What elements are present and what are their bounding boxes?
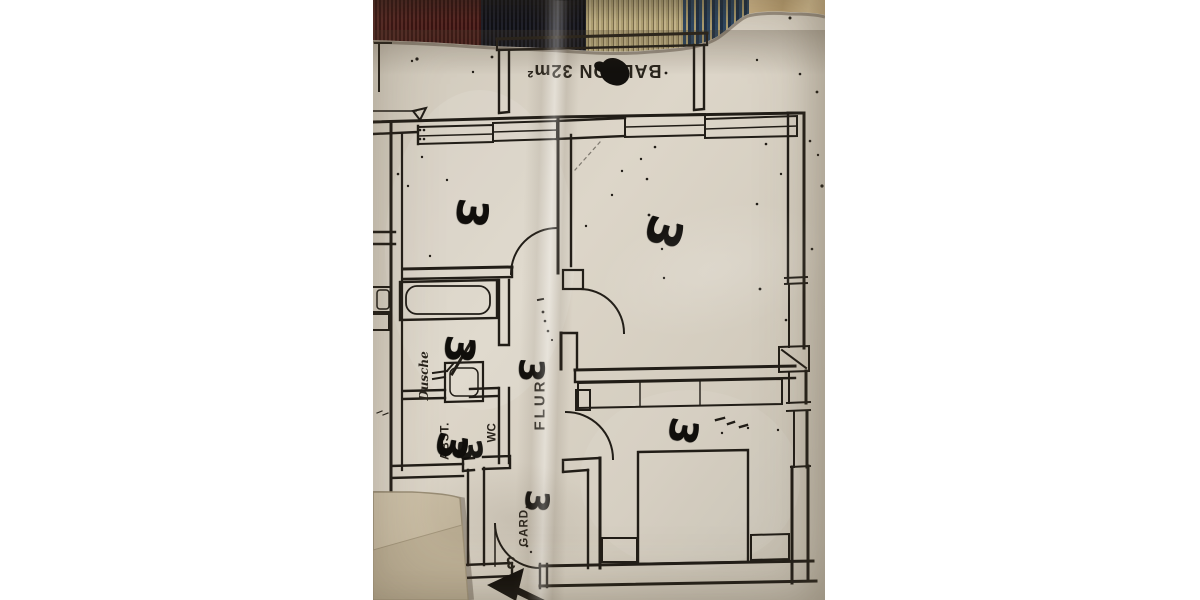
overlapping-sheet — [373, 492, 470, 600]
handwritten-three-hall: 3 — [513, 358, 548, 383]
handwritten-three-wardrobe: 3 — [520, 489, 554, 514]
handwritten-three-bath: 3 — [438, 333, 480, 364]
floor-plan-photo: BALKON 32m² FLUR ABST. WC GARD. Dusche 3… — [373, 0, 825, 600]
shower-label: Dusche — [418, 346, 430, 406]
screenshot-stage: BALKON 32m² FLUR ABST. WC GARD. Dusche 3… — [0, 0, 1200, 600]
unit-number-label: 3 — [499, 554, 524, 572]
handwritten-three-storage-b: 3 — [453, 438, 487, 463]
floor-plan-drawing — [373, 0, 825, 600]
handwritten-three-room1: 3 — [449, 196, 494, 229]
